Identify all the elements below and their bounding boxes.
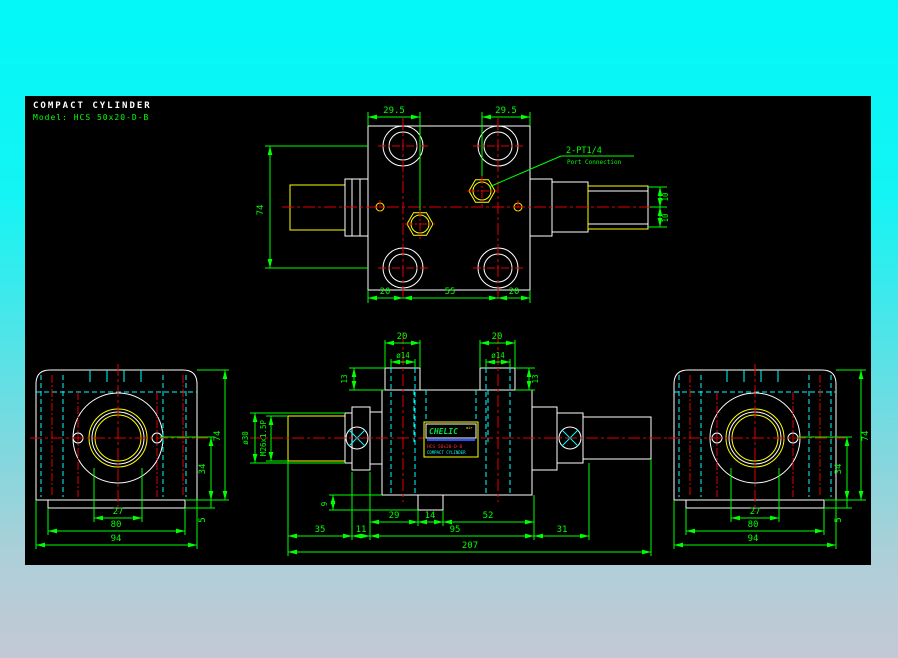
dim-boss-left: 20 [397, 332, 408, 342]
left-end-view: 27 80 94 74 34 5 [30, 364, 229, 549]
dim-boss-right: 20 [492, 332, 503, 342]
dim-52: 52 [483, 511, 494, 521]
left-end-view-centerlines [30, 364, 208, 512]
dim-boss-height-right: 13 [531, 374, 540, 383]
nameplate-brand-mark: air [466, 426, 472, 430]
nameplate-brand: CHELIC [429, 427, 458, 436]
dim-left-27: 27 [113, 507, 124, 517]
dim-right-80: 80 [748, 520, 759, 530]
drawing-svg: COMPACT CYLINDER Model: HCS 50x20-D-B [25, 96, 871, 565]
drawing-title: COMPACT CYLINDER [33, 101, 152, 111]
nameplate: CHELIC air HCS 50x20-D-B COMPACT CYLINDE… [424, 422, 478, 457]
dim-29: 29 [389, 511, 400, 521]
dim-rod-upper: 10 [661, 192, 670, 202]
nameplate-product: COMPACT CYLINDER [427, 450, 466, 455]
dim-top-bottom-left: 20 [380, 287, 391, 297]
dim-top-bottom-right: 20 [509, 287, 520, 297]
dim-left-74: 74 [213, 431, 223, 442]
cad-canvas: COMPACT CYLINDER Model: HCS 50x20-D-B [25, 96, 871, 565]
dim-right-27: 27 [750, 507, 761, 517]
dim-top-bottom-center: 55 [445, 287, 456, 297]
dim-left-80: 80 [111, 520, 122, 530]
dim-rod-lower: 10 [661, 213, 670, 223]
right-end-view: 27 80 94 74 34 5 [668, 364, 871, 549]
dim-foot: 9 [320, 502, 329, 507]
dim-total: 207 [462, 541, 478, 551]
dim-14: 14 [425, 511, 436, 521]
dim-top-port-right: 29.5 [495, 106, 517, 116]
top-view: 29.5 29.5 74 20 55 20 10 10 2-PT1/4 [256, 106, 670, 303]
dim-left-5: 5 [198, 517, 208, 522]
dim-right-74: 74 [861, 431, 871, 442]
title-block: COMPACT CYLINDER Model: HCS 50x20-D-B [33, 101, 152, 122]
dim-right-34: 34 [834, 464, 844, 475]
left-end-view-geometry [36, 370, 197, 508]
dim-top-height: 74 [256, 205, 266, 216]
port-annotation-line2: Port Connection [567, 159, 622, 166]
dim-left-34: 34 [198, 464, 208, 475]
dim-boss-height-left: 13 [340, 374, 349, 383]
top-view-dimensions: 29.5 29.5 74 20 55 20 10 10 [256, 106, 670, 303]
dim-left-94: 94 [111, 534, 122, 544]
dim-right-5: 5 [834, 517, 844, 522]
port-annotation-line1: 2-PT1/4 [566, 146, 602, 156]
front-view: CHELIC air HCS 50x20-D-B COMPACT CYLINDE… [241, 332, 668, 556]
dim-35: 35 [315, 525, 326, 535]
dim-11: 11 [356, 525, 367, 535]
dim-95: 95 [450, 525, 461, 535]
dim-top-port-left: 29.5 [383, 106, 405, 116]
dim-hole-right: ø14 [491, 351, 505, 360]
dim-rod-thread: M26x1.5P [259, 419, 268, 456]
desktop-background: { "header": { "product": "COMPACT CYLIND… [0, 0, 898, 658]
top-view-centerlines [282, 118, 664, 300]
drawing-model: Model: HCS 50x20-D-B [33, 113, 149, 122]
right-end-view-centerlines [668, 364, 846, 512]
dim-31: 31 [557, 525, 568, 535]
dim-hole-left: ø14 [396, 351, 410, 360]
dim-right-94: 94 [748, 534, 759, 544]
dim-rod-dia: ø30 [241, 431, 250, 445]
